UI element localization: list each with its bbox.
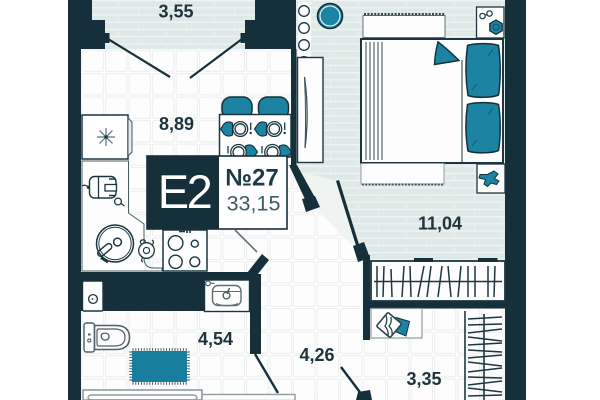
svg-text:№27: №27 <box>225 165 278 192</box>
svg-text:4,26: 4,26 <box>299 345 334 365</box>
svg-text:3,55: 3,55 <box>158 2 193 22</box>
svg-text:3,35: 3,35 <box>406 369 441 389</box>
svg-text:8,89: 8,89 <box>159 114 194 134</box>
svg-text:E2: E2 <box>158 165 211 218</box>
svg-text:33,15: 33,15 <box>227 192 281 216</box>
svg-text:4,54: 4,54 <box>198 329 233 349</box>
svg-text:11,04: 11,04 <box>418 214 462 234</box>
